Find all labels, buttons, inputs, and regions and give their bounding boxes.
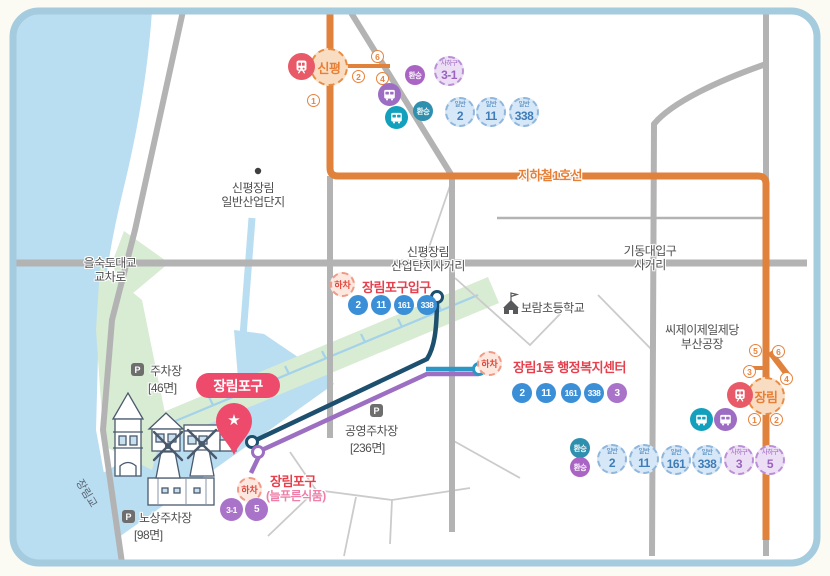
bus-number-338: 338: [584, 383, 604, 403]
bus-badge-general-338: 일반 338: [509, 97, 539, 127]
exit-6-jangnim: 6: [772, 345, 785, 358]
badge-type-label: 일반: [639, 449, 650, 456]
label-sanup-intersection: 신평장림 산업단지사거리: [391, 245, 465, 274]
transfer-badge-purple: 환승: [570, 457, 590, 477]
exit-1-sinpyeong: 1: [307, 94, 320, 107]
label-eulsukdo-intersection: 을숙도대교 교차로: [84, 256, 137, 285]
badge-number: 11: [638, 457, 650, 469]
label-line: 교차로: [84, 270, 137, 284]
bus-icon-teal: [690, 408, 713, 431]
label-line: 기동대입구: [624, 244, 677, 258]
label-school: 보람초등학교: [521, 301, 584, 315]
bus-number-11: 11: [536, 383, 556, 403]
exit-1-jangnim: 1: [748, 413, 761, 426]
label-line: 을숙도대교: [84, 256, 137, 270]
subway-line-1-label: 지하철1호선: [518, 165, 582, 184]
exit-3-jangnim: 3: [743, 365, 756, 378]
pin-star-icon: ★: [225, 411, 243, 429]
badge-type-label: 일반: [455, 102, 466, 109]
stop-subname-pogu: (늘푸른식품): [266, 487, 326, 504]
label-line: 사거리: [624, 258, 677, 272]
bus-number-11: 11: [371, 295, 391, 315]
bus-badge-general-338: 일반 338: [692, 445, 722, 475]
badge-number: 338: [515, 110, 534, 122]
label-gidong-intersection: 기동대입구 사거리: [624, 244, 677, 273]
transfer-badge-purple: 환승: [405, 65, 425, 85]
badge-region-label: 사하구: [731, 450, 747, 457]
badge-number: 161: [667, 458, 686, 470]
exit-2-jangnim: 2: [770, 413, 783, 426]
label-line: 일반산업단지: [221, 195, 284, 209]
badge-type-label: 일반: [607, 449, 618, 456]
bus-icon-purple: [378, 83, 401, 106]
exit-6-sinpyeong: 6: [371, 50, 384, 63]
parking-icon: P: [370, 404, 383, 417]
destination-label-jangnimpogu: 장림포구: [196, 373, 280, 398]
parking-236-capacity: [236면]: [350, 439, 385, 456]
bus-number-3-1: 3-1: [220, 498, 243, 521]
bus-icon-teal: [385, 106, 408, 129]
subway-train-icon: [288, 53, 315, 80]
parking-236-name: 공영주차장: [345, 422, 398, 439]
badge-number: 2: [609, 457, 615, 469]
stop-name-admin: 장림1동 행정복지센터: [513, 357, 626, 376]
bus-badge-saha-3: 사하구 3: [724, 445, 754, 475]
station-sinpyeong: 신평: [310, 48, 348, 86]
badge-type-label: 일반: [519, 102, 530, 109]
label-line: 씨제이제일제당: [665, 323, 739, 337]
badge-type-label: 일반: [702, 450, 713, 457]
label-cj-factory: 씨제이제일제당 부산공장: [665, 323, 739, 352]
jangnim-port-access-map: ★ 지하철1호선 신평 1 2 4 6 환승 환승 사하구 3-1 일반 2 일…: [0, 0, 830, 576]
label-line: 신평장림: [221, 181, 284, 195]
bus-number-2: 2: [348, 295, 368, 315]
badge-region-label: 사하구: [762, 450, 778, 457]
badge-type-label: 일반: [671, 450, 682, 457]
bus-icon-purple: [714, 408, 737, 431]
badge-number: 2: [457, 110, 463, 122]
stop-name-ipgu: 장림포구입구: [362, 277, 431, 296]
exit-2-sinpyeong: 2: [352, 70, 365, 83]
subway-train-icon: [727, 382, 753, 408]
badge-type-label: 일반: [486, 102, 497, 109]
exit-4-jangnim: 4: [780, 372, 793, 385]
bus-number-5: 5: [245, 498, 268, 521]
parking-46-capacity: [46면]: [148, 379, 177, 396]
bus-badge-general-2: 일반 2: [445, 97, 475, 127]
parking-98-name: 노상주차장: [139, 509, 192, 526]
bus-badge-saha-3-1: 사하구 3-1: [434, 56, 464, 86]
alight-badge-ipgu: 하차: [330, 272, 355, 297]
transfer-badge-teal: 환승: [413, 101, 433, 121]
bus-number-161: 161: [394, 295, 414, 315]
exit-5-jangnim: 5: [749, 344, 762, 357]
industrial-dot-marker: [255, 168, 261, 174]
bus-badge-general-2: 일반 2: [597, 444, 627, 474]
bus-number-2: 2: [512, 383, 532, 403]
bus-number-161: 161: [561, 383, 581, 403]
bus-badge-general-11: 일반 11: [629, 444, 659, 474]
label-line: 신평장림: [391, 245, 465, 259]
badge-number: 11: [485, 110, 497, 122]
bus-number-338: 338: [417, 295, 437, 315]
badge-number: 338: [698, 458, 717, 470]
parking-46-name: 주차장: [150, 362, 182, 379]
label-line: 부산공장: [665, 337, 739, 351]
parking-icon: P: [131, 363, 144, 376]
label-line: 산업단지사거리: [391, 259, 465, 273]
badge-number: 5: [767, 458, 773, 470]
bus-badge-saha-5: 사하구 5: [755, 445, 785, 475]
bus-badge-general-11: 일반 11: [476, 97, 506, 127]
badge-region-label: 사하구: [441, 61, 457, 68]
parking-98-capacity: [98면]: [134, 526, 163, 543]
label-industrial-complex: 신평장림 일반산업단지: [221, 181, 284, 210]
parking-icon: P: [122, 510, 135, 523]
badge-number: 3-1: [441, 69, 457, 81]
badge-number: 3: [736, 458, 742, 470]
bus-badge-general-161: 일반 161: [661, 445, 691, 475]
alight-badge-admin: 하차: [477, 351, 502, 376]
bus-number-3: 3: [607, 383, 627, 403]
transfer-badge-teal: 환승: [570, 438, 590, 458]
